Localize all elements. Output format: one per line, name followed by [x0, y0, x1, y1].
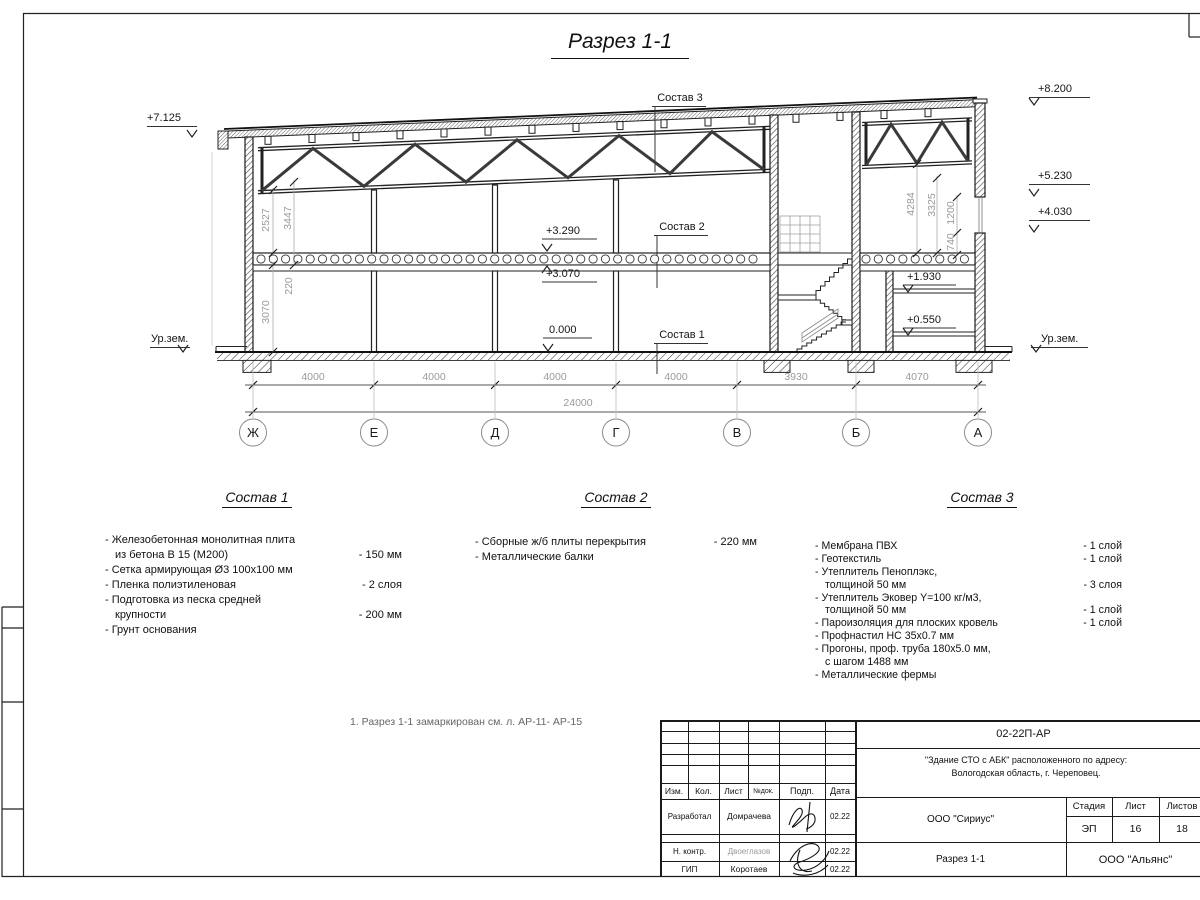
leader-label-sostav1: Состав 1	[656, 329, 708, 341]
stamp-grid-line	[660, 754, 855, 755]
list-item: из бетона В 15 (М200)- 150 мм	[105, 548, 402, 563]
stamp-col-kol: Кол.	[688, 783, 719, 799]
span-dim: 4000	[283, 371, 343, 383]
axis-bubble-e: Е	[361, 419, 388, 446]
stamp-grid-line	[660, 861, 855, 862]
drawing-note: 1. Разрез 1-1 замаркирован см. л. АР-11-…	[350, 716, 582, 728]
leader-label-sostav2: Состав 2	[656, 221, 708, 233]
list-item: - Геотекстиль- 1 слой	[815, 553, 1122, 566]
list-item: - Профнастил НС 35x0.7 мм	[815, 630, 1122, 643]
list-item: - Металлические балки	[475, 550, 757, 565]
stamp-col-podp: Подп.	[779, 783, 825, 799]
stamp-grid-line	[660, 731, 855, 732]
span-dim: 4000	[525, 371, 585, 383]
axis-bubble-b: Б	[843, 419, 870, 446]
stamp-grid-line	[660, 783, 855, 784]
axis-bubble-d: Д	[482, 419, 509, 446]
vertical-dim: 3070	[260, 287, 272, 337]
elevation-mark-8200: +8.200	[1038, 83, 1072, 95]
stamp-grid-line	[660, 834, 855, 835]
stamp-stage-value: ЭП	[1066, 816, 1112, 842]
list-item: - Пленка полиэтиленовая- 2 слоя	[105, 578, 402, 593]
stamp-date: 02.22	[825, 862, 855, 876]
stamp-org-contractor: ООО "Альянс"	[1066, 842, 1200, 877]
stamp-role: ГИП	[660, 862, 719, 876]
stamp-grid-line	[1112, 797, 1113, 842]
span-dim: 4000	[646, 371, 706, 383]
stair-window	[780, 216, 820, 252]
total-dim: 24000	[548, 397, 608, 409]
stamp-grid-line	[660, 799, 855, 800]
stamp-sheet-title: Разрез 1-1	[855, 842, 1066, 877]
list-item: крупности- 200 мм	[105, 608, 402, 623]
stamp-grid-line	[660, 765, 855, 766]
stamp-project-line2: Вологодская область, г. Череповец.	[855, 766, 1197, 780]
elevation-mark-7125: +7.125	[147, 112, 181, 124]
roof	[218, 98, 987, 150]
axis-bubble-v: В	[724, 419, 751, 446]
stamp-name: Двоеглазов	[719, 844, 779, 858]
list-item: с шагом 1488 мм	[815, 656, 1122, 669]
elevation-mark-0550: +0.550	[907, 314, 941, 326]
list-item: толщиной 50 мм- 3 слоя	[815, 579, 1122, 592]
stamp-project-line1: "Здание СТО с АБК" расположенного по адр…	[855, 753, 1197, 767]
axis-bubble-zh: Ж	[240, 419, 267, 446]
stamp-stage-label: Стадия	[1066, 797, 1112, 816]
list-item: - Прогоны, проф. труба 180x5.0 мм,	[815, 643, 1122, 656]
vertical-dim: 2527	[260, 195, 272, 245]
stamp-col-list: Лист	[719, 783, 748, 799]
ground-level-label-left: Ур.зем.	[151, 333, 188, 345]
span-dim: 4070	[887, 371, 947, 383]
stamp-date: 02.22	[825, 809, 855, 823]
stamp-doc-code: 02-22П-АР	[855, 720, 1192, 748]
stamp-sheets-total: 18	[1159, 816, 1200, 842]
stamp-grid-line	[1159, 797, 1160, 842]
title-block: Изм. Кол. Лист №док. Подп. Дата Разработ…	[660, 720, 1200, 877]
elevation-mark-3290: +3.290	[546, 225, 580, 237]
stamp-sheets-label: Листов	[1159, 797, 1200, 816]
composition-2-heading: Состав 2	[581, 489, 651, 508]
leader-label-sostav3: Состав 3	[654, 92, 706, 104]
vertical-dim: 220	[283, 261, 295, 311]
vertical-dim: 3447	[282, 193, 294, 243]
stamp-role: Разработал	[660, 809, 719, 823]
list-item: - Железобетонная монолитная плита	[105, 533, 402, 548]
list-item: - Утеплитель Пеноплэкс,	[815, 566, 1122, 579]
list-item: - Сборные ж/б плиты перекрытия- 220 мм	[475, 535, 757, 550]
elevation-mark-0000: 0.000	[549, 324, 577, 336]
composition-2-list: - Сборные ж/б плиты перекрытия- 220 мм -…	[475, 535, 757, 565]
stamp-grid-line	[660, 743, 855, 744]
mezzanine-floor	[893, 289, 975, 293]
stamp-col-data: Дата	[825, 783, 855, 799]
stamp-name: Коротаев	[719, 862, 779, 876]
composition-3-heading: Состав 3	[947, 489, 1017, 508]
stairs	[778, 259, 852, 352]
vertical-dim: 3325	[926, 180, 938, 230]
stamp-grid-line	[1066, 816, 1200, 817]
stamp-grid-line	[855, 748, 1200, 749]
stamp-grid-line	[855, 797, 1200, 798]
stamp-role: Н. контр.	[660, 844, 719, 858]
axis-bubble-a: А	[965, 419, 992, 446]
composition-1-list: - Железобетонная монолитная плита из бет…	[105, 533, 402, 638]
list-item: - Утеплитель Эковер Y=100 кг/м3,	[815, 592, 1122, 605]
elevation-mark-3070: +3.070	[546, 268, 580, 280]
list-item: - Металлические фермы	[815, 669, 1122, 682]
drawing-title: Разрез 1-1	[551, 30, 689, 59]
stamp-sheet-label: Лист	[1112, 797, 1159, 816]
list-item: - Грунт основания	[105, 623, 402, 638]
ground-level-label-right: Ур.зем.	[1041, 333, 1078, 345]
elevation-mark-1930: +1.930	[907, 271, 941, 283]
stamp-grid-line	[660, 842, 1200, 843]
stamp-date: 02.22	[825, 844, 855, 858]
list-item: - Сетка армирующая Ø3 100x100 мм	[105, 563, 402, 578]
stamp-col-izm: Изм.	[660, 783, 688, 799]
vertical-dim: 4284	[905, 179, 917, 229]
stamp-grid-line	[660, 720, 1200, 722]
stamp-col-doc: №док.	[748, 783, 779, 799]
stamp-grid-line	[1066, 797, 1067, 877]
list-item: - Пароизоляция для плоских кровель- 1 сл…	[815, 617, 1122, 630]
list-item: - Мембрана ПВХ- 1 слой	[815, 540, 1122, 553]
list-item: толщиной 50 мм- 1 слой	[815, 604, 1122, 617]
stamp-name: Домрачева	[719, 809, 779, 823]
elevation-mark-4030: +4.030	[1038, 206, 1072, 218]
composition-3-list: - Мембрана ПВХ- 1 слой - Геотекстиль- 1 …	[815, 540, 1122, 682]
axis-bubble-g: Г	[603, 419, 630, 446]
span-dim: 4000	[404, 371, 464, 383]
stamp-org-design: ООО "Сириус"	[855, 797, 1066, 842]
vertical-dim: 740	[945, 217, 957, 267]
stamp-grid-line	[660, 876, 1200, 878]
elevation-mark-5230: +5.230	[1038, 170, 1072, 182]
stamp-grid-line	[855, 720, 857, 877]
span-dim: 3930	[766, 371, 826, 383]
composition-1-heading: Состав 1	[222, 489, 292, 508]
stamp-sheet-number: 16	[1112, 816, 1159, 842]
list-item: - Подготовка из песка средней	[105, 593, 402, 608]
